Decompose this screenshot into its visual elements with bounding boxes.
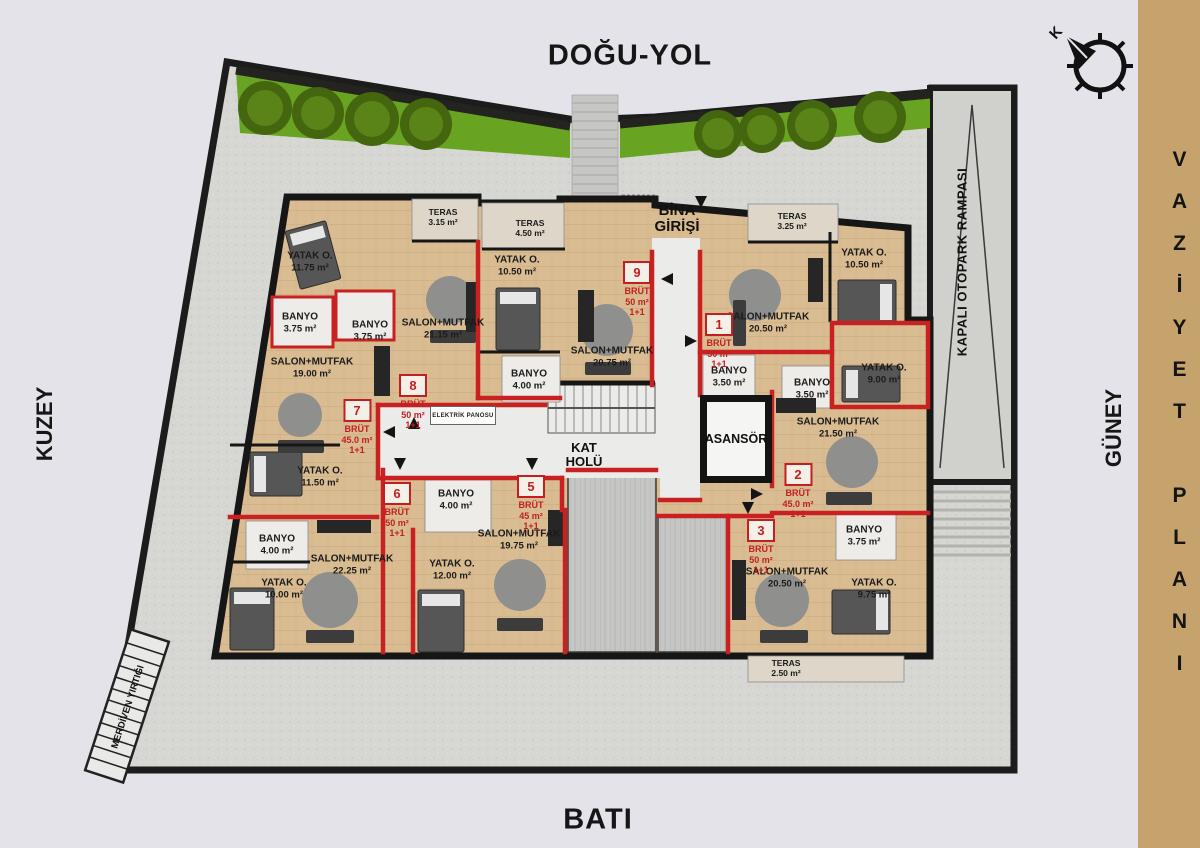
unit-badge: 5BRÜT45 m²1+1 [517,475,545,532]
room-label: YATAK O.9.75 m² [851,578,896,601]
room-label: TERAS2.50 m² [771,658,800,678]
room-area: 4.50 m² [515,228,544,238]
site-plan-page: DOĞU-YOL BATI KUZEY GÜNEY K VAZİYET PLAN… [0,0,1200,848]
unit-badge: 9BRÜT50 m²1+1 [623,261,651,318]
room-name: YATAK O. [429,559,474,570]
unit-area: 45 m² [517,511,545,522]
unit-badge: 3BRÜT50 m²1+1 [747,519,775,576]
room-area: 21.50 m² [797,428,880,440]
unit-number: 7 [343,399,371,422]
room-name: YATAK O. [851,578,896,589]
room-name: BANYO [438,489,474,500]
site-plan-graphic [0,0,1200,848]
room-area: 22.25 m² [311,565,394,577]
room-area: 3.25 m² [777,221,806,231]
unit-badge: 1BRÜT50 m²1+1 [705,313,733,370]
room-label: YATAK O.10.50 m² [494,255,539,278]
unit-number: 8 [399,374,427,397]
room-name: YATAK O. [861,363,906,374]
unit-number: 5 [517,475,545,498]
room-name: SALON+MUTFAK [571,346,654,357]
room-area: 3.75 m² [352,331,388,343]
room-label: BANYO4.00 m² [511,369,547,392]
elevator-shaft: ASANSÖR [700,395,772,483]
unit-area: 45.0 m² [341,435,372,446]
room-area: 3.75 m² [846,536,882,548]
room-label: BANYO4.00 m² [259,534,295,557]
room-area: 3.15 m² [428,217,457,227]
room-area: 11.50 m² [297,477,342,489]
room-label: SALON+MUTFAK20.75 m² [571,346,654,369]
building-entrance-label: BİNA GİRİŞİ [640,203,714,235]
unit-gross-label: BRÜT [517,500,545,511]
unit-gross-label: BRÜT [399,399,427,410]
room-name: TERAS [429,207,458,217]
room-label: SALON+MUTFAK21.50 m² [797,417,880,440]
unit-area: 50 m² [623,297,651,308]
unit-type: 1+1 [705,359,733,370]
parking-ramp [930,88,1014,555]
room-area: 19.75 m² [478,540,561,552]
room-area: 11.75 m² [287,262,332,274]
unit-type: 1+1 [782,509,813,520]
room-label: SALON+MUTFAK21.15 m² [402,318,485,341]
unit-badge: 6BRÜT50 m²1+1 [383,482,411,539]
unit-area: 50 m² [383,518,411,529]
room-name: BANYO [846,525,882,536]
room-label: SALON+MUTFAK19.75 m² [478,529,561,552]
room-name: BANYO [794,378,830,389]
electric-panel: ELEKTRİK PANOSU [430,406,496,425]
room-name: YATAK O. [297,466,342,477]
room-name: BANYO [259,534,295,545]
unit-type: 1+1 [341,445,372,456]
room-area: 3.50 m² [794,389,830,401]
room-label: BANYO3.50 m² [794,378,830,401]
room-label: YATAK O.9.00 m² [861,363,906,386]
room-area: 4.00 m² [438,500,474,512]
unit-gross-label: BRÜT [747,544,775,555]
unit-type: 1+1 [383,528,411,539]
room-area: 3.75 m² [282,323,318,335]
room-label: BANYO3.75 m² [352,320,388,343]
unit-number: 9 [623,261,651,284]
unit-number: 2 [784,463,812,486]
unit-number: 1 [705,313,733,336]
room-area: 20.50 m² [727,323,810,335]
road-label-east: DOĞU-YOL [548,40,712,73]
unit-gross-label: BRÜT [383,507,411,518]
room-name: SALON+MUTFAK [311,554,394,565]
unit-badge: 8BRÜT50 m²1+1 [399,374,427,431]
unit-type: 1+1 [623,307,651,318]
plan-title: VAZİYET PLANI [1147,148,1191,748]
unit-number: 3 [747,519,775,542]
unit-type: 1+1 [517,521,545,532]
room-area: 19.00 m² [271,368,354,380]
floor-hall-label: KAT HOLÜ [556,441,612,469]
room-label: YATAK O.10.50 m² [841,248,886,271]
room-label: SALON+MUTFAK19.00 m² [271,357,354,380]
room-name: YATAK O. [841,248,886,259]
unit-gross-label: BRÜT [341,424,372,435]
room-area: 4.00 m² [259,545,295,557]
room-name: SALON+MUTFAK [797,417,880,428]
room-label: BANYO3.75 m² [846,525,882,548]
unit-badge: 7BRÜT45.0 m²1+1 [341,399,372,456]
room-label: BANYO4.00 m² [438,489,474,512]
room-name: SALON+MUTFAK [271,357,354,368]
room-label: YATAK O.12.00 m² [429,559,474,582]
unit-area: 50 m² [399,410,427,421]
room-area: 10.50 m² [841,259,886,271]
direction-label-west: BATI [563,804,633,837]
unit-area: 50 m² [705,349,733,360]
room-label: YATAK O.11.50 m² [297,466,342,489]
room-name: YATAK O. [287,251,332,262]
room-label: SALON+MUTFAK20.50 m² [727,312,810,335]
room-name: SALON+MUTFAK [727,312,810,323]
room-area: 4.00 m² [511,380,547,392]
room-label: BANYO3.75 m² [282,312,318,335]
unit-area: 50 m² [747,555,775,566]
room-area: 3.50 m² [711,377,747,389]
room-label: TERAS3.25 m² [777,211,806,231]
unit-gross-label: BRÜT [623,286,651,297]
room-label: YATAK O.11.75 m² [287,251,332,274]
parking-ramp-label: KAPALI OTOPARK RAMPASI [955,168,970,356]
room-area: 9.75 m² [851,589,896,601]
room-area: 20.75 m² [571,357,654,369]
room-area: 10.00 m² [261,589,306,601]
direction-label-north: KUZEY [32,387,58,462]
room-name: BANYO [352,320,388,331]
room-area: 10.50 m² [494,266,539,278]
direction-label-south: GÜNEY [1101,389,1127,467]
unit-badge: 2BRÜT45.0 m²1+1 [782,463,813,520]
unit-number: 6 [383,482,411,505]
room-label: TERAS4.50 m² [515,218,544,238]
unit-area: 45.0 m² [782,499,813,510]
unit-gross-label: BRÜT [705,338,733,349]
room-label: TERAS3.15 m² [428,207,457,227]
room-name: TERAS [516,218,545,228]
room-area: 2.50 m² [771,668,800,678]
unit-type: 1+1 [747,565,775,576]
room-area: 9.00 m² [861,374,906,386]
room-name: BANYO [282,312,318,323]
room-area: 20.50 m² [746,578,829,590]
room-area: 21.15 m² [402,329,485,341]
room-label: YATAK O.10.00 m² [261,578,306,601]
room-name: TERAS [778,211,807,221]
room-name: TERAS [772,658,801,668]
unit-type: 1+1 [399,420,427,431]
room-name: YATAK O. [261,578,306,589]
room-area: 12.00 m² [429,570,474,582]
room-name: YATAK O. [494,255,539,266]
unit-gross-label: BRÜT [782,488,813,499]
room-name: SALON+MUTFAK [402,318,485,329]
room-name: BANYO [511,369,547,380]
room-label: SALON+MUTFAK22.25 m² [311,554,394,577]
